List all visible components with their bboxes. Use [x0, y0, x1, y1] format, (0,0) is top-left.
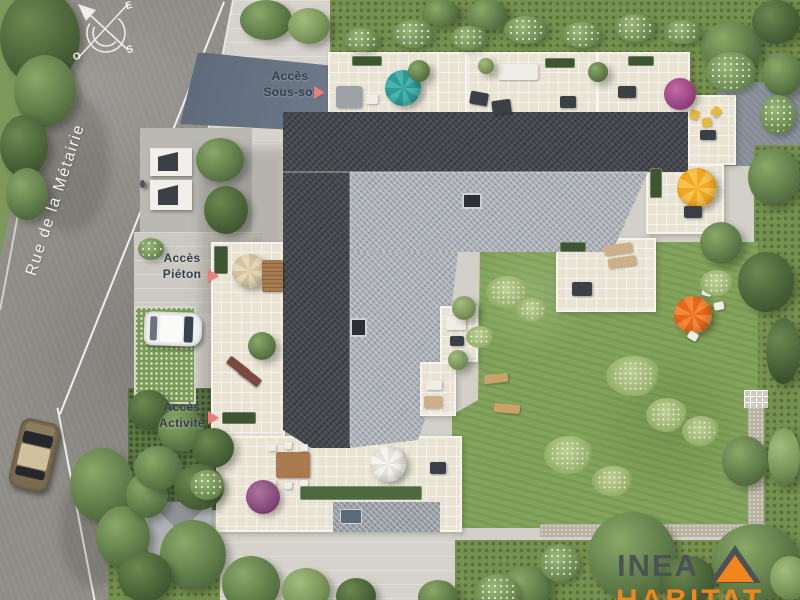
roof-light-north-wing	[350, 172, 648, 252]
purple-tree	[246, 480, 280, 514]
logo-triangle-icon	[709, 545, 761, 583]
planter	[628, 56, 654, 66]
terrace-divider	[465, 52, 467, 114]
flower-patch	[466, 326, 494, 348]
flower-patch	[544, 436, 594, 474]
tree	[452, 296, 476, 320]
flower-bush	[562, 22, 602, 48]
access-arrow-icon: ▶	[208, 406, 219, 426]
tree	[288, 8, 330, 44]
label-line: Piéton	[148, 266, 216, 282]
roof-ridge	[283, 171, 648, 173]
roof-window	[350, 318, 367, 337]
outdoor-table	[366, 94, 378, 104]
label-line: Accès	[148, 250, 216, 266]
tree	[408, 60, 430, 82]
access-arrow-icon: ▶	[314, 81, 325, 101]
tree	[752, 0, 800, 44]
outdoor-furniture	[430, 462, 446, 474]
magenta-tree	[664, 78, 696, 110]
flower-bush	[392, 20, 434, 48]
logo-tagline: HABITAT	[616, 584, 764, 600]
outdoor-table	[560, 96, 576, 108]
tree	[588, 62, 608, 82]
tree	[448, 350, 468, 370]
tree	[478, 58, 494, 74]
flower-bush	[706, 52, 756, 92]
chair	[284, 482, 292, 489]
outdoor-chairs	[572, 282, 592, 296]
flower-patch	[682, 416, 720, 446]
chair	[284, 442, 292, 449]
flower-patch	[592, 466, 634, 496]
tree	[700, 222, 742, 264]
flower-bush	[614, 14, 656, 42]
site-plan: N E S O Rue de la Métairie Accès Sous-so…	[0, 0, 800, 600]
pedestrian	[140, 180, 145, 188]
chair	[300, 444, 308, 451]
flower-bush	[760, 95, 796, 135]
tree	[248, 332, 276, 360]
bush	[540, 544, 580, 582]
flower-patch	[516, 298, 548, 322]
planter	[352, 56, 382, 66]
parked-car	[143, 309, 204, 351]
car-windshield	[184, 316, 194, 342]
compass-rose	[52, 0, 162, 70]
planter-hedge	[300, 486, 422, 500]
terrace-divider	[437, 52, 439, 114]
access-arrow-icon: ▶	[208, 264, 219, 284]
roof-dark-north-wing	[283, 112, 688, 172]
planter	[560, 242, 586, 252]
chair	[268, 444, 276, 451]
tree	[722, 436, 768, 486]
bush	[192, 428, 234, 468]
tree	[422, 0, 460, 26]
planter	[545, 58, 575, 68]
roof-window	[462, 193, 482, 209]
car-roof	[160, 316, 183, 343]
logo-name: INEA	[617, 548, 699, 584]
outdoor-sofa	[498, 64, 538, 80]
wood-deck	[262, 260, 283, 292]
pouf	[701, 117, 712, 128]
roof-ridge	[349, 172, 351, 444]
flower-bush	[504, 16, 548, 44]
label-acces-pieton: Accès Piéton	[148, 250, 216, 282]
planter	[222, 412, 256, 424]
chair	[713, 301, 724, 311]
path-grid-pad	[744, 390, 768, 408]
roof-dark-west-wing	[283, 172, 350, 448]
planter	[650, 168, 662, 198]
outdoor-table	[684, 206, 702, 218]
parasol-beige	[232, 254, 266, 288]
flower-patch	[700, 270, 734, 296]
outdoor-bench	[700, 130, 716, 140]
tree	[738, 252, 794, 312]
flower-bush	[450, 26, 488, 50]
tree	[768, 428, 800, 486]
parasol-orange	[674, 296, 712, 334]
outdoor-table	[618, 86, 636, 98]
flower-bush	[190, 470, 224, 500]
tree	[118, 552, 172, 600]
skylight	[340, 509, 362, 524]
car-rear-window	[150, 316, 158, 340]
outdoor-table	[424, 396, 442, 408]
tree	[762, 52, 800, 96]
outdoor-chairs	[426, 380, 442, 390]
tree	[766, 318, 800, 384]
flower-bush	[344, 28, 380, 52]
tree	[196, 138, 244, 182]
tree	[240, 0, 292, 40]
dining-table	[276, 452, 310, 478]
tree	[204, 186, 248, 234]
tree	[748, 148, 800, 206]
outdoor-sofa	[336, 86, 362, 108]
flower-bush	[664, 20, 702, 44]
parasol-yellow	[677, 168, 717, 208]
outdoor-table	[450, 336, 464, 346]
sun-lounger	[491, 99, 512, 116]
flower-patch	[606, 356, 662, 396]
parasol-white	[370, 446, 406, 482]
